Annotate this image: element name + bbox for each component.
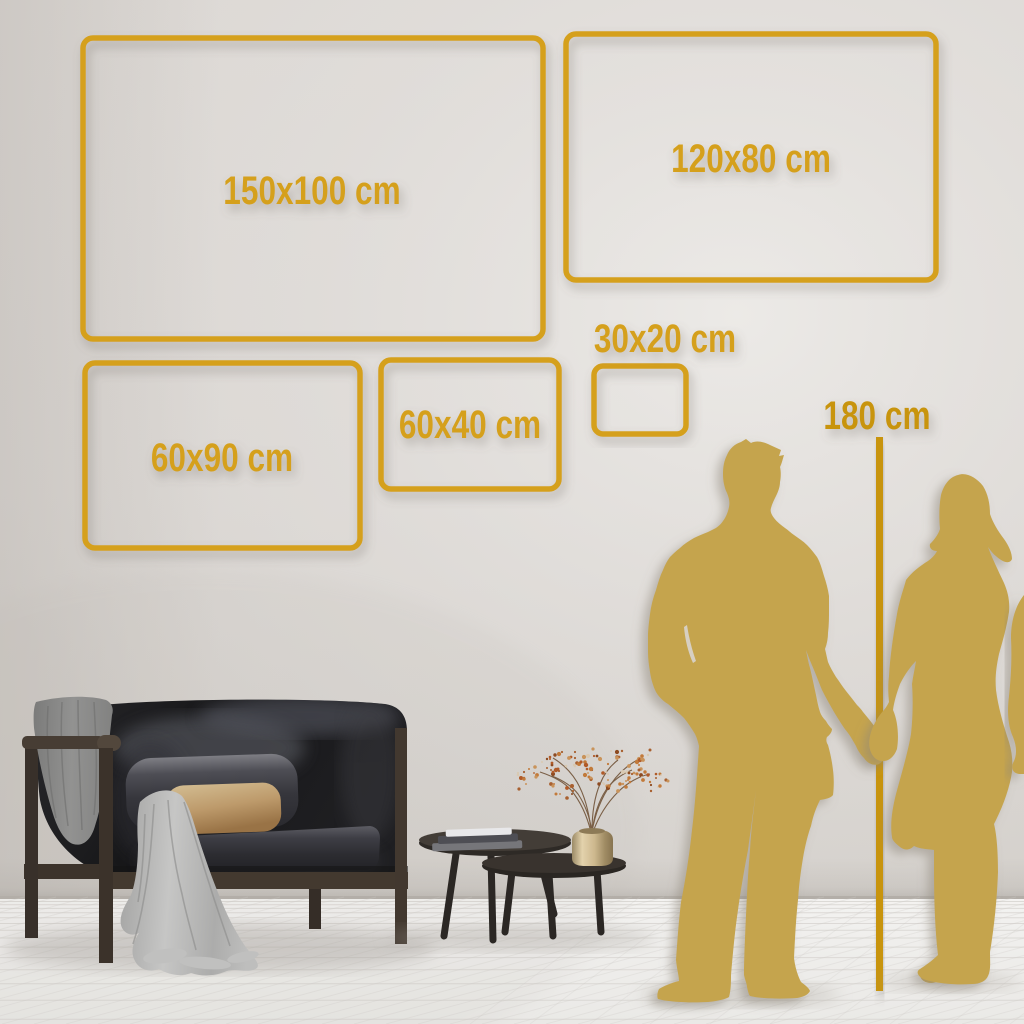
svg-text:180 cm: 180 cm (823, 392, 930, 437)
svg-text:60x90 cm: 60x90 cm (151, 434, 293, 479)
svg-text:30x20 cm: 30x20 cm (594, 315, 736, 360)
svg-text:120x80 cm: 120x80 cm (671, 135, 831, 180)
svg-text:60x40 cm: 60x40 cm (399, 401, 541, 446)
svg-text:150x100 cm: 150x100 cm (223, 167, 400, 212)
